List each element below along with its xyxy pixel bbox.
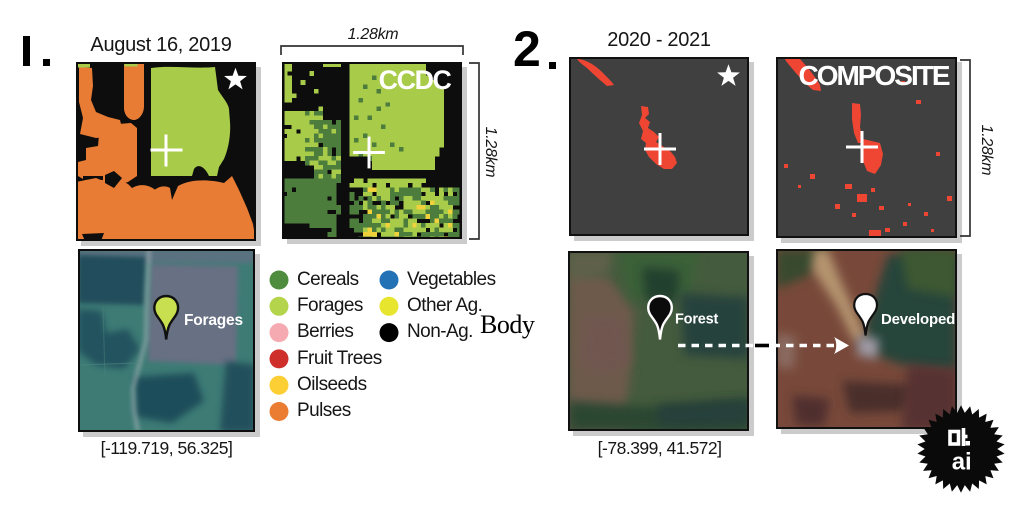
svg-text:COMPOSITE: COMPOSITE — [798, 60, 949, 91]
svg-text:Forest: Forest — [675, 312, 718, 328]
svg-text:ai: ai — [952, 449, 972, 476]
svg-text:Developed: Developed — [881, 311, 955, 328]
svg-text:CCDC: CCDC — [379, 65, 452, 95]
svg-text:Forages: Forages — [184, 312, 243, 329]
